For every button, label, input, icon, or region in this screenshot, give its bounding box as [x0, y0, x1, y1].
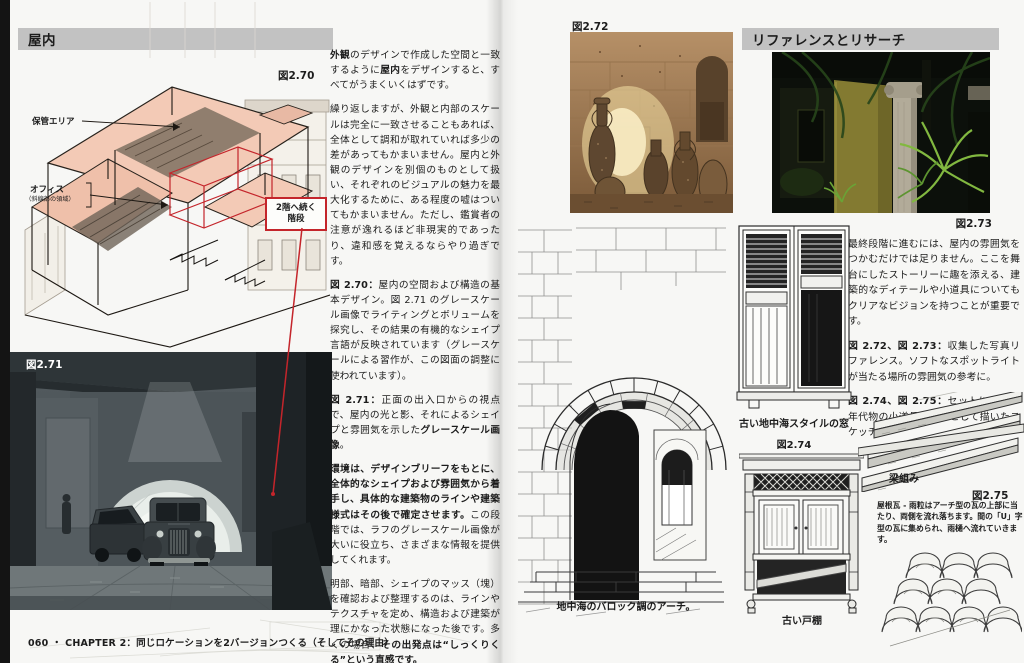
stairs-callout-box: 2階へ続く 階段	[265, 197, 327, 231]
paragraph: 外観のデザインで作成した空間と一致するように屋内をデザインすると、すべてがうまく…	[330, 48, 500, 93]
stairs-callout-line2: 階段	[287, 214, 304, 225]
roof-tiles-note: 屋根瓦 - 雨粒はアーチ型の瓦の上部に当たり、両側を流れ落ちます。間の「U」字型…	[877, 500, 1024, 545]
fig-2-73-label: 図2.73	[942, 216, 992, 231]
stairs-callout-line1: 2階へ続く	[276, 203, 316, 214]
section-header-indoor-label: 屋内	[28, 29, 56, 49]
book-spread: 屋内 図2.70	[0, 0, 1024, 663]
arch-ink-sketch	[516, 220, 733, 622]
reference-photo-courtyard	[772, 52, 990, 213]
fig-2-74-label: 図2.74	[728, 436, 860, 451]
left-body-text: 外観のデザインで作成した空間と一致するように屋内をデザインすると、すべてがうまく…	[330, 48, 500, 663]
paragraph: 明部、暗部、シェイプのマッス（塊）を確認および整理するのは、ラインやテクスチャを…	[330, 577, 500, 663]
office-note-label: （斜線部の領域）	[12, 194, 88, 203]
grayscale-interior-image	[10, 352, 332, 610]
right-page: 図2.72	[502, 0, 1024, 663]
cupboard-caption: 古い戸棚	[742, 612, 862, 627]
window-ink-sketch	[735, 224, 853, 412]
construction-lines	[140, 0, 280, 58]
paragraph: 繰り返しますが、外観と内部のスケールは完全に一致させることもあれば、全体として調…	[330, 102, 500, 268]
section-header-reference-label: リファレンスとリサーチ	[752, 29, 906, 49]
section-header-reference: リファレンスとリサーチ	[742, 28, 999, 50]
arch-caption: 地中海のバロック調のアーチ。	[526, 598, 726, 613]
beams-caption: 梁組み	[874, 470, 934, 485]
page-footer: 060 ・ CHAPTER 2：同じロケーションを2バージョンつくる（そしてその…	[28, 635, 394, 649]
roof-tiles-ink-sketch	[880, 546, 1022, 654]
window-caption: 古い地中海スタイルの窓	[728, 415, 860, 430]
left-page: 屋内 図2.70	[10, 0, 502, 663]
storage-area-label: 保管エリア	[32, 115, 75, 127]
figure-caption-paragraph: 図 2.71：正面の出入口からの視点で、屋内の光と影、それによるシェイプと雰囲気…	[330, 393, 500, 454]
paragraph: 最終段階に進むには、屋内の雰囲気をつかむだけでは足りません。ここを舞台にしたスト…	[848, 237, 1020, 330]
paragraph: 環境は、デザインブリーフをもとに、全体的なシェイプおよび雰囲気から着手し、具体的…	[330, 462, 500, 568]
cupboard-ink-sketch	[739, 452, 864, 614]
reference-photo-amphorae	[570, 32, 733, 213]
figure-caption-paragraph: 図 2.72、図 2.73：収集した写真リファレンス。ソフトなスポットライトが当…	[848, 339, 1020, 385]
figure-caption-paragraph: 図 2.70：屋内の空間および構造の基本デザイン。図 2.71 のグレースケール…	[330, 278, 500, 384]
fig-2-71-label: 図2.71	[26, 357, 62, 372]
